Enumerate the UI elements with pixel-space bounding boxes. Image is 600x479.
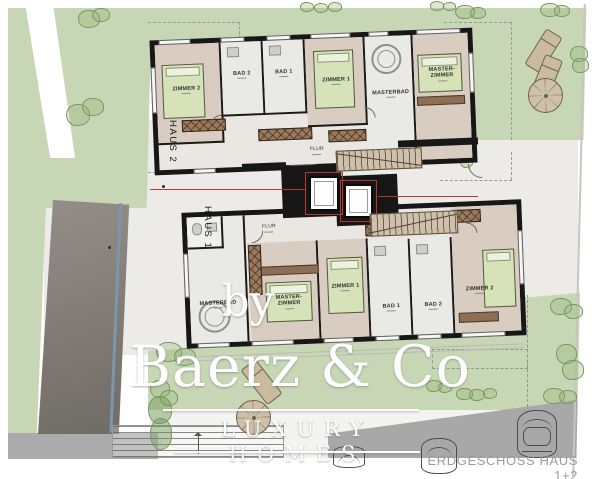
room-label: BAD 1	[382, 303, 400, 312]
dashed-line	[148, 22, 240, 23]
dashed-line	[511, 152, 512, 180]
stairs-icon	[336, 147, 423, 171]
room-label: ZIMMER 2	[466, 285, 494, 294]
section-marker	[305, 172, 343, 215]
room-label: MASTER-ZIMMER	[426, 66, 459, 82]
window	[194, 168, 216, 174]
haus1-label: HAUS 1	[202, 206, 213, 249]
dashed-line	[511, 22, 512, 140]
parasol-icon	[528, 78, 563, 113]
watermark-brand: Baerz & Co	[128, 338, 472, 398]
hall-label: FLUR	[262, 224, 276, 232]
window	[368, 31, 388, 37]
room-label: BAD 2	[233, 70, 251, 79]
watermark-by: by	[198, 280, 298, 324]
pillow	[166, 67, 200, 77]
car-roof	[523, 427, 551, 446]
haus2-label: HAUS 2	[167, 120, 178, 163]
wardrobe	[258, 127, 312, 141]
car-icon	[517, 410, 557, 458]
shower-icon	[374, 246, 386, 256]
room-label: ZIMMER 1	[322, 76, 350, 85]
room-label: BAD 1	[275, 69, 293, 78]
wc-icon	[192, 223, 202, 235]
room-label: ZIMMER 1	[331, 283, 359, 292]
pillow	[486, 252, 510, 262]
bed-icon	[482, 249, 516, 308]
stair-diagonal	[370, 214, 458, 234]
plan-caption: ERDGESCHOSS HAUS 1+2	[408, 453, 578, 479]
dashed-line	[444, 22, 512, 23]
wardrobe	[328, 129, 366, 143]
desk	[459, 311, 499, 323]
survey-dot	[162, 185, 165, 188]
dashed-line	[440, 180, 512, 181]
section-line	[378, 196, 478, 197]
window	[220, 37, 244, 43]
pillow	[317, 53, 349, 63]
section-line	[150, 189, 306, 190]
watermark-rule	[174, 451, 420, 453]
room-label: ZIMMER 2	[172, 85, 200, 94]
hall-label: FLUR	[310, 147, 324, 155]
shower-icon	[416, 244, 428, 254]
shower-icon	[227, 47, 239, 57]
stair-diagonal	[336, 153, 423, 166]
watermark-rule	[163, 409, 419, 411]
room-label: BAD 2	[424, 301, 442, 310]
survey-dot	[108, 246, 111, 249]
shower-icon	[269, 45, 281, 55]
dashed-line	[527, 295, 528, 407]
pillow	[330, 260, 358, 270]
sideboard	[417, 95, 465, 106]
stairs-icon	[370, 210, 459, 237]
floorplan-haus2: ZIMMER 2 BAD 2 BAD 1 ZIMMER 1 MASTERBAD …	[149, 28, 477, 176]
window	[266, 35, 290, 41]
room-label: MASTERBAD	[372, 89, 409, 99]
car-rear	[522, 451, 552, 452]
site-plan: ZIMMER 2 BAD 2 BAD 1 ZIMMER 1 MASTERBAD …	[0, 0, 600, 479]
watermark-tagline: LUXURY HOMES	[152, 417, 442, 467]
